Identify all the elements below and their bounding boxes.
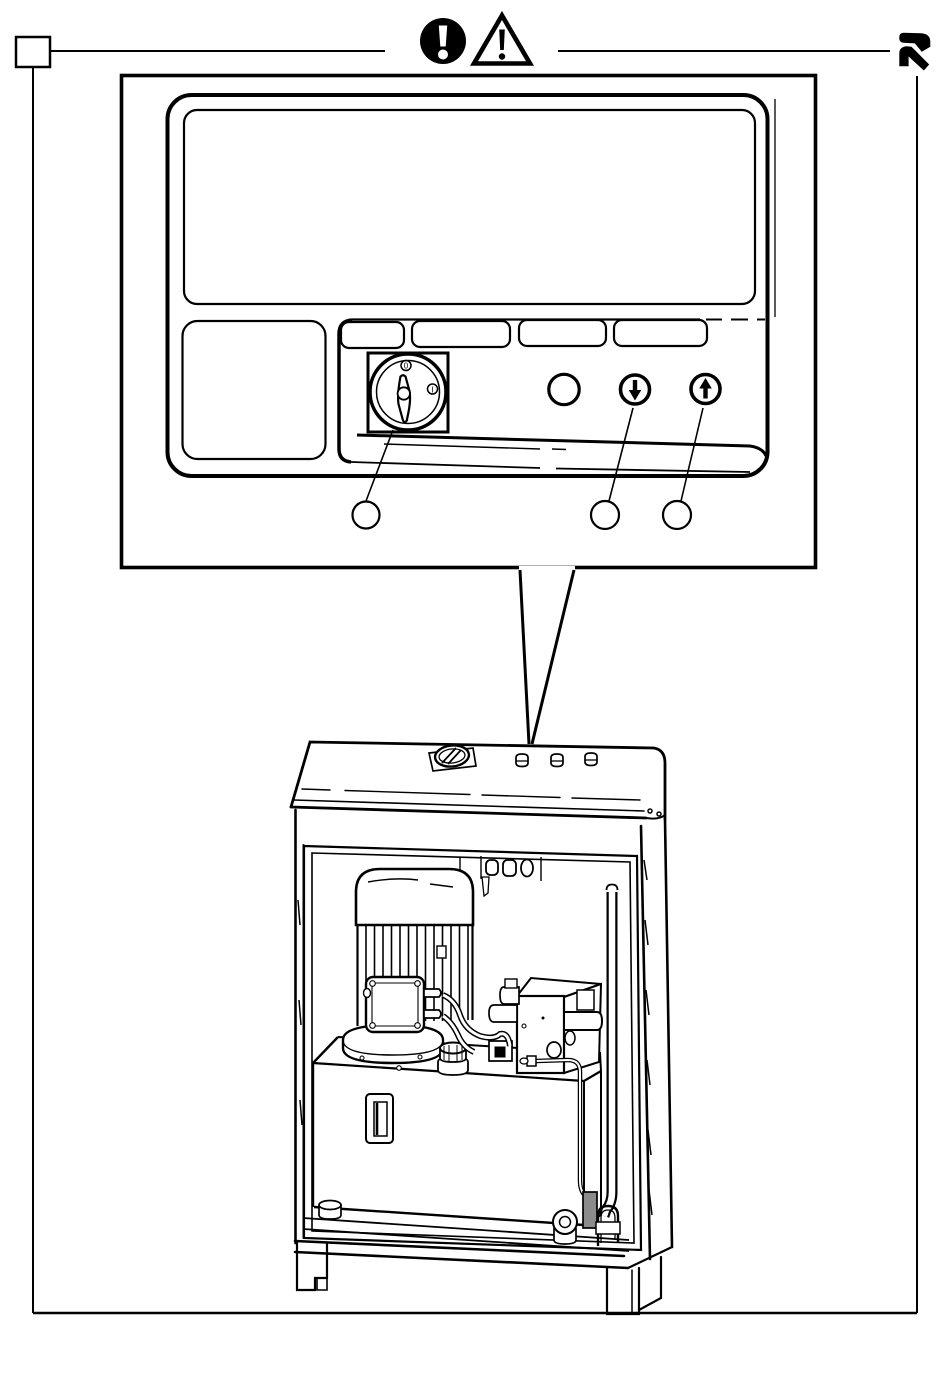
svg-text:I: I bbox=[431, 385, 433, 394]
svg-text:0: 0 bbox=[404, 362, 409, 371]
